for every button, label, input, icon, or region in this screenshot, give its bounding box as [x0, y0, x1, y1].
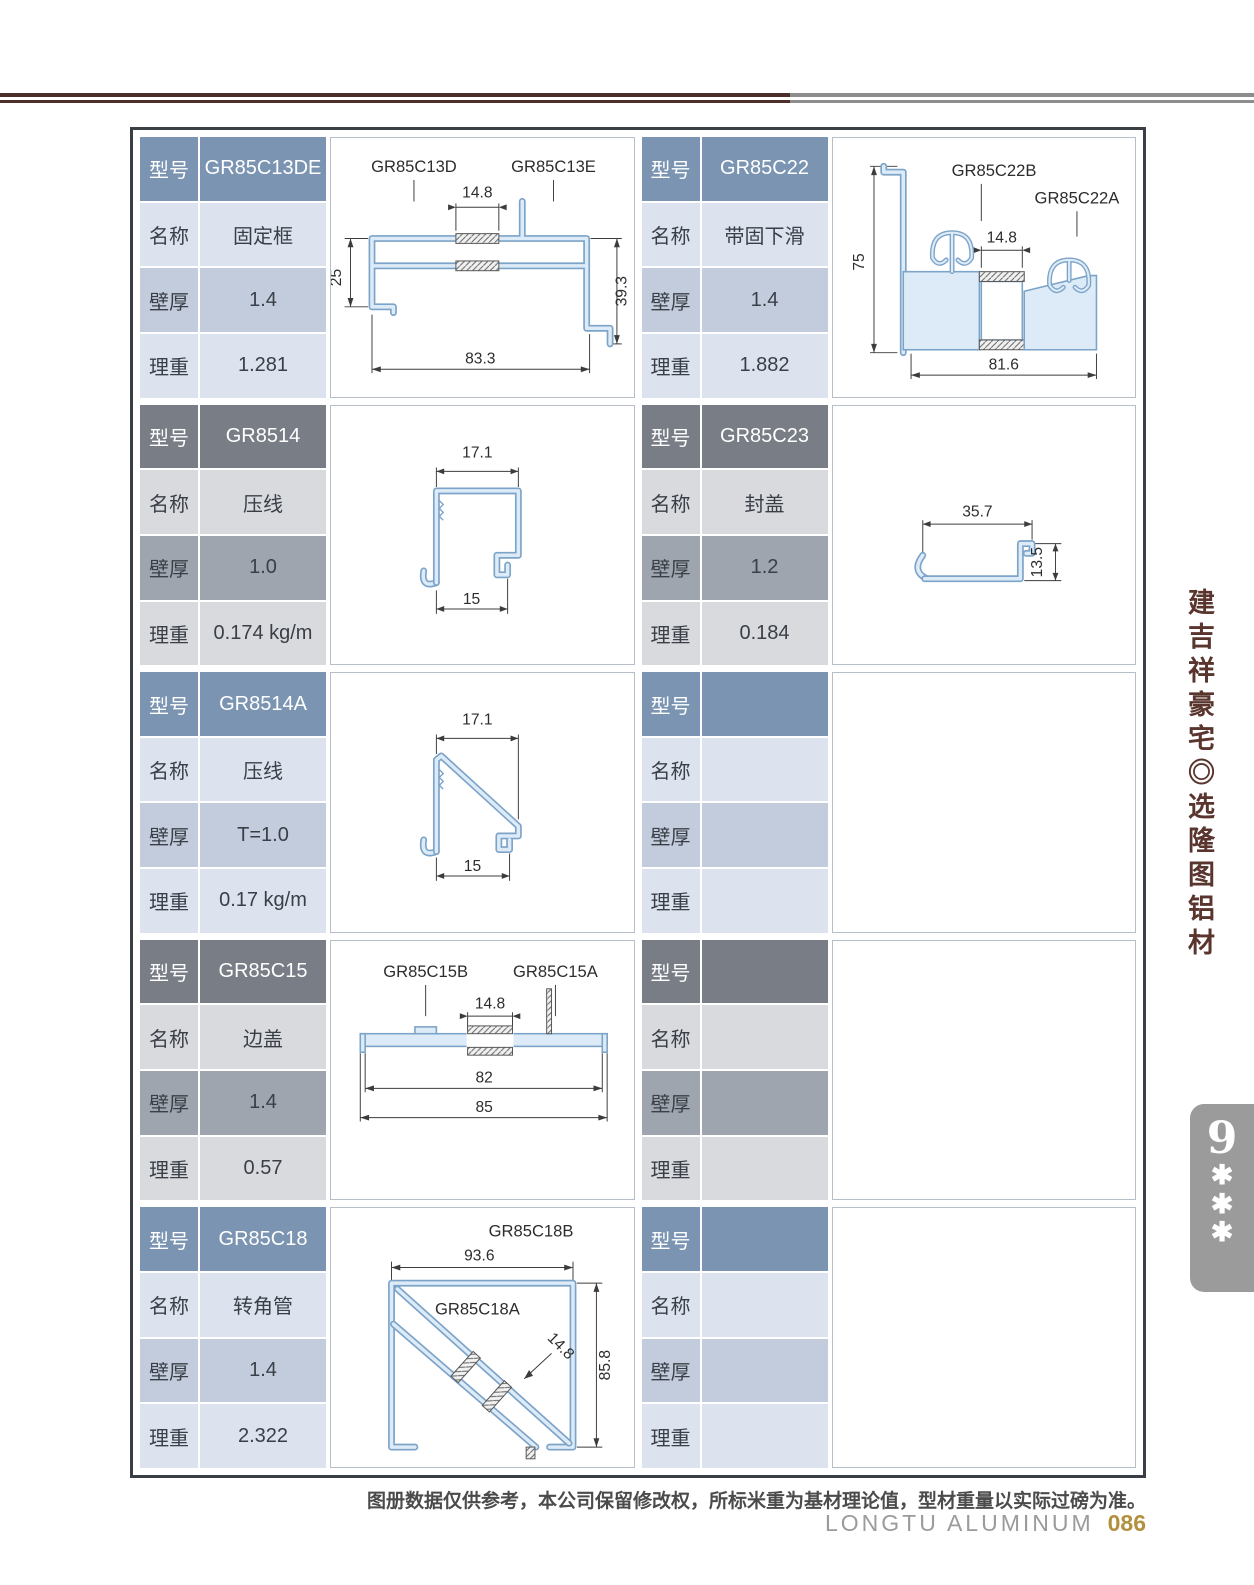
name-value [702, 738, 828, 802]
spec-table: 型号 GR85C13DE 名称 固定框 壁厚 1.4 理重 1.281 [140, 137, 326, 398]
thickness-label: 壁厚 [642, 536, 700, 600]
name-value: 压线 [200, 738, 326, 802]
weight-value: 0.17 kg/m [200, 869, 326, 933]
part-label-left: GR85C13D [371, 157, 457, 176]
name-label: 名称 [642, 738, 700, 802]
spec-table: 型号 名称 壁厚 理重 [642, 1207, 828, 1468]
profile-shape [372, 201, 610, 343]
section-star-1: ✱ [1211, 1162, 1234, 1190]
thickness-label: 壁厚 [642, 1339, 700, 1403]
dim-bottom: 83.3 [465, 350, 495, 367]
thickness-value [702, 1339, 828, 1403]
dim-top: 35.7 [962, 503, 992, 520]
drawing-box: GR85C15B GR85C15A [330, 940, 635, 1201]
model-label: 型号 [642, 672, 700, 736]
dim-left: 75 [851, 253, 868, 271]
model-label: 型号 [140, 1207, 198, 1271]
model-value: GR85C13DE [200, 137, 326, 201]
drawing-box: 17.1 15 [330, 672, 635, 933]
weight-value: 1.281 [200, 334, 326, 398]
weight-label: 理重 [642, 869, 700, 933]
spec-table: 型号 GR85C15 名称 边盖 壁厚 1.4 理重 0.57 [140, 940, 326, 1201]
model-value [702, 672, 828, 736]
weight-label: 理重 [642, 1404, 700, 1468]
profile-cell-gr8514: 型号 GR8514 名称 压线 壁厚 1.0 理重 0.174 kg/m [140, 405, 635, 666]
name-label: 名称 [642, 470, 700, 534]
part-label-left: GR85C15B [383, 962, 468, 981]
weight-value [702, 1404, 828, 1468]
profile-drawing: 35.7 13.5 [833, 406, 1136, 665]
name-value: 转角管 [200, 1273, 326, 1337]
part-label-left: GR85C22B [951, 161, 1036, 180]
profile-drawing: GR85C22B GR85C22A [833, 138, 1136, 397]
name-label: 名称 [140, 203, 198, 267]
dimension-annotations [345, 180, 622, 373]
profile-cell-empty: 型号 名称 壁厚 理重 [642, 940, 1137, 1201]
name-value: 固定框 [200, 203, 326, 267]
drawing-box: GR85C22B GR85C22A [832, 137, 1137, 398]
dim-top: 14.8 [462, 185, 492, 202]
thickness-label: 壁厚 [140, 268, 198, 332]
brand-logo: 隆图 节能铝材 LONGTU ENERGY-SAVING ALUMINUM [900, 19, 1230, 82]
spec-table: 型号 GR85C23 名称 封盖 壁厚 1.2 理重 0.184 [642, 405, 828, 666]
profile-cell-empty: 型号 名称 壁厚 理重 [642, 1207, 1137, 1468]
profile-shape [917, 543, 1031, 578]
section-star-3: ✱ [1211, 1219, 1234, 1247]
model-label: 型号 [642, 405, 700, 469]
dim-mid: 14.8 [475, 995, 505, 1012]
spec-table: 型号 名称 壁厚 理重 [642, 940, 828, 1201]
weight-value: 0.184 [702, 602, 828, 666]
page-number: 086 [1108, 1510, 1146, 1537]
profile-cell-gr8514a: 型号 GR8514A 名称 压线 壁厚 T=1.0 理重 0.17 kg/m [140, 672, 635, 933]
thickness-label: 壁厚 [140, 1339, 198, 1403]
thickness-label: 壁厚 [642, 268, 700, 332]
dim-inner: 82 [476, 1069, 493, 1086]
spec-table: 型号 GR8514 名称 压线 壁厚 1.0 理重 0.174 kg/m [140, 405, 326, 666]
thickness-label: 壁厚 [642, 1071, 700, 1135]
dim-right: 39.3 [614, 276, 631, 306]
profile-drawing: 17.1 15 [331, 673, 634, 932]
thickness-value: 1.4 [200, 268, 326, 332]
name-value [702, 1273, 828, 1337]
name-label: 名称 [642, 1005, 700, 1069]
thickness-label: 壁厚 [140, 1071, 198, 1135]
model-label: 型号 [642, 1207, 700, 1271]
model-label: 型号 [642, 940, 700, 1004]
name-value: 带固下滑 [702, 203, 828, 267]
spec-table: 型号 GR85C22 名称 带固下滑 壁厚 1.4 理重 1.882 [642, 137, 828, 398]
model-label: 型号 [140, 672, 198, 736]
name-value: 压线 [200, 470, 326, 534]
thickness-value [702, 803, 828, 867]
dim-mid: 14.8 [986, 229, 1016, 246]
weight-label: 理重 [140, 602, 198, 666]
dim-top: 17.1 [462, 444, 492, 461]
disclaimer-note: 图册数据仅供参考，本公司保留修改权，所标米重为基材理论值，型材重量以实际过磅为准… [367, 1486, 1146, 1513]
weight-label: 理重 [140, 1137, 198, 1201]
dim-top: 17.1 [462, 712, 492, 729]
dim-bottom: 85 [476, 1099, 494, 1116]
drawing-box: GR85C18B [330, 1207, 635, 1468]
thickness-label: 壁厚 [140, 803, 198, 867]
model-value: GR85C18 [200, 1207, 326, 1271]
profile-shape [423, 490, 518, 583]
profile-drawing: GR85C15B GR85C15A [331, 941, 634, 1200]
drawing-box-empty [832, 940, 1137, 1201]
part-label-top: GR85C18B [489, 1222, 574, 1241]
profile-cell-gr85c15: 型号 GR85C15 名称 边盖 壁厚 1.4 理重 0.57 GR85C15B… [140, 940, 635, 1201]
model-label: 型号 [140, 137, 198, 201]
name-value: 边盖 [200, 1005, 326, 1069]
thickness-value: 1.0 [200, 536, 326, 600]
thickness-value: T=1.0 [200, 803, 326, 867]
thickness-label: 壁厚 [140, 536, 198, 600]
model-value [702, 940, 828, 1004]
dim-right: 85.8 [597, 1350, 614, 1380]
model-value: GR8514A [200, 672, 326, 736]
model-value: GR85C22 [702, 137, 828, 201]
name-label: 名称 [140, 470, 198, 534]
part-label-right: GR85C15A [513, 962, 599, 981]
weight-label: 理重 [140, 334, 198, 398]
drawing-box: 17.1 15 [330, 405, 635, 666]
weight-label: 理重 [140, 869, 198, 933]
weight-value [702, 869, 828, 933]
model-value: GR85C23 [702, 405, 828, 469]
model-label: 型号 [140, 940, 198, 1004]
profile-cell-gr85c18: 型号 GR85C18 名称 转角管 壁厚 1.4 理重 2.322 GR85C1… [140, 1207, 635, 1468]
header-rule-thin [0, 100, 1254, 103]
vertical-slogan: 建吉祥豪宅◎选隆图铝材 [1180, 588, 1219, 962]
thickness-value: 1.2 [702, 536, 828, 600]
thickness-label: 壁厚 [642, 803, 700, 867]
section-star-2: ✱ [1211, 1191, 1234, 1219]
footer-brand: LONGTU ALUMINUM 086 [825, 1510, 1146, 1537]
brand-logo-row: 隆图 节能铝材 [900, 19, 1230, 65]
weight-value: 1.882 [702, 334, 828, 398]
weight-label: 理重 [140, 1404, 198, 1468]
weight-label: 理重 [642, 602, 700, 666]
weight-value: 0.174 kg/m [200, 602, 326, 666]
weight-label: 理重 [642, 334, 700, 398]
model-label: 型号 [642, 137, 700, 201]
section-number: 9 [1207, 1116, 1238, 1162]
name-label: 名称 [140, 738, 198, 802]
spec-table: 型号 名称 壁厚 理重 [642, 672, 828, 933]
model-value [702, 1207, 828, 1271]
profile-shape [423, 756, 518, 853]
spec-table: 型号 GR85C18 名称 转角管 壁厚 1.4 理重 2.322 [140, 1207, 326, 1468]
name-label: 名称 [642, 1273, 700, 1337]
drawing-box-empty [832, 672, 1137, 933]
dim-left: 25 [331, 269, 345, 287]
header-rule-thick [0, 93, 1254, 97]
name-label: 名称 [140, 1005, 198, 1069]
name-label: 名称 [140, 1273, 198, 1337]
dim-right: 13.5 [1028, 546, 1045, 577]
catalog-page: GR85C 系列隔热节能推拉窗型材图 GR85C series insulati… [0, 0, 1254, 1585]
profile-cell-gr85c22: 型号 GR85C22 名称 带固下滑 壁厚 1.4 理重 1.882 GR85C… [642, 137, 1137, 398]
brand-name-cn: 隆图 [965, 19, 1055, 64]
thickness-value: 1.4 [200, 1339, 326, 1403]
profile-cell-gr85c23: 型号 GR85C23 名称 封盖 壁厚 1.2 理重 0.184 [642, 405, 1137, 666]
dim-bottom: 15 [463, 591, 481, 608]
part-label-right: GR85C22A [1034, 188, 1120, 207]
profile-cell-gr85c13de: 型号 GR85C13DE 名称 固定框 壁厚 1.4 理重 1.281 GR85… [140, 137, 635, 398]
page-subtitle: GR85C series insulation energy-saving pu… [20, 68, 810, 87]
drawing-box: 35.7 13.5 [832, 405, 1137, 666]
weight-value [702, 1137, 828, 1201]
footer-brand-name: LONGTU ALUMINUM [825, 1510, 1094, 1537]
name-value [702, 1005, 828, 1069]
dim-bottom: 81.6 [988, 356, 1018, 373]
profile-cell-empty: 型号 名称 壁厚 理重 [642, 672, 1137, 933]
header-titles: GR85C 系列隔热节能推拉窗型材图 GR85C series insulati… [20, 16, 810, 87]
model-label: 型号 [140, 405, 198, 469]
page-title: GR85C 系列隔热节能推拉窗型材图 [20, 16, 810, 65]
dim-bottom: 15 [464, 858, 482, 875]
brand-suffix: 节能铝材 [1065, 29, 1165, 65]
part-label-right: GR85C13E [511, 157, 596, 176]
thickness-value: 1.4 [702, 268, 828, 332]
weight-value: 0.57 [200, 1137, 326, 1201]
profile-drawing: GR85C18B [331, 1208, 634, 1467]
weight-value: 2.322 [200, 1404, 326, 1468]
profile-drawing: 17.1 15 [331, 406, 634, 665]
profile-drawing: GR85C13D GR85C13E [331, 138, 634, 397]
name-label: 名称 [642, 203, 700, 267]
brand-name-en: LONGTU ENERGY-SAVING ALUMINUM [900, 68, 1230, 82]
thickness-value [702, 1071, 828, 1135]
name-value: 封盖 [702, 470, 828, 534]
model-value: GR8514 [200, 405, 326, 469]
thickness-value: 1.4 [200, 1071, 326, 1135]
weight-label: 理重 [642, 1137, 700, 1201]
profile-grid: 型号 GR85C13DE 名称 固定框 壁厚 1.4 理重 1.281 GR85… [130, 127, 1146, 1478]
model-value: GR85C15 [200, 940, 326, 1004]
section-tab: 9 ✱ ✱ ✱ [1190, 1104, 1254, 1292]
drawing-box: GR85C13D GR85C13E [330, 137, 635, 398]
dim-top: 93.6 [464, 1248, 494, 1265]
part-label-inner: GR85C18A [435, 1300, 521, 1319]
spec-table: 型号 GR8514A 名称 压线 壁厚 T=1.0 理重 0.17 kg/m [140, 672, 326, 933]
drawing-box-empty [832, 1207, 1137, 1468]
